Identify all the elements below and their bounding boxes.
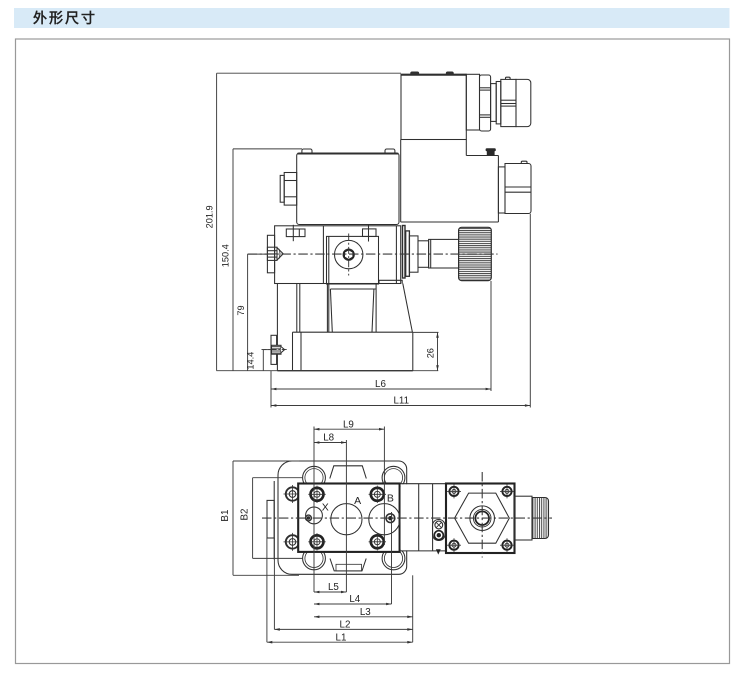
svg-text:L3: L3 (360, 607, 371, 618)
svg-text:X: X (322, 501, 329, 513)
svg-text:201.9: 201.9 (204, 205, 214, 228)
svg-text:外形尺寸: 外形尺寸 (33, 10, 97, 26)
svg-text:L9: L9 (343, 419, 354, 430)
svg-text:L2: L2 (340, 620, 351, 631)
svg-text:B: B (387, 492, 394, 504)
svg-text:14.4: 14.4 (245, 352, 255, 370)
svg-text:L1: L1 (336, 632, 347, 643)
svg-text:A: A (354, 495, 361, 507)
svg-text:79: 79 (236, 305, 246, 315)
svg-text:26: 26 (426, 348, 436, 358)
svg-text:L8: L8 (323, 433, 334, 444)
svg-text:L11: L11 (393, 396, 409, 407)
svg-text:150.4: 150.4 (220, 244, 230, 267)
svg-text:L6: L6 (375, 379, 386, 390)
svg-text:L5: L5 (328, 582, 339, 593)
svg-text:B1: B1 (220, 510, 231, 522)
svg-text:B2: B2 (240, 509, 251, 521)
svg-text:L4: L4 (349, 594, 360, 605)
